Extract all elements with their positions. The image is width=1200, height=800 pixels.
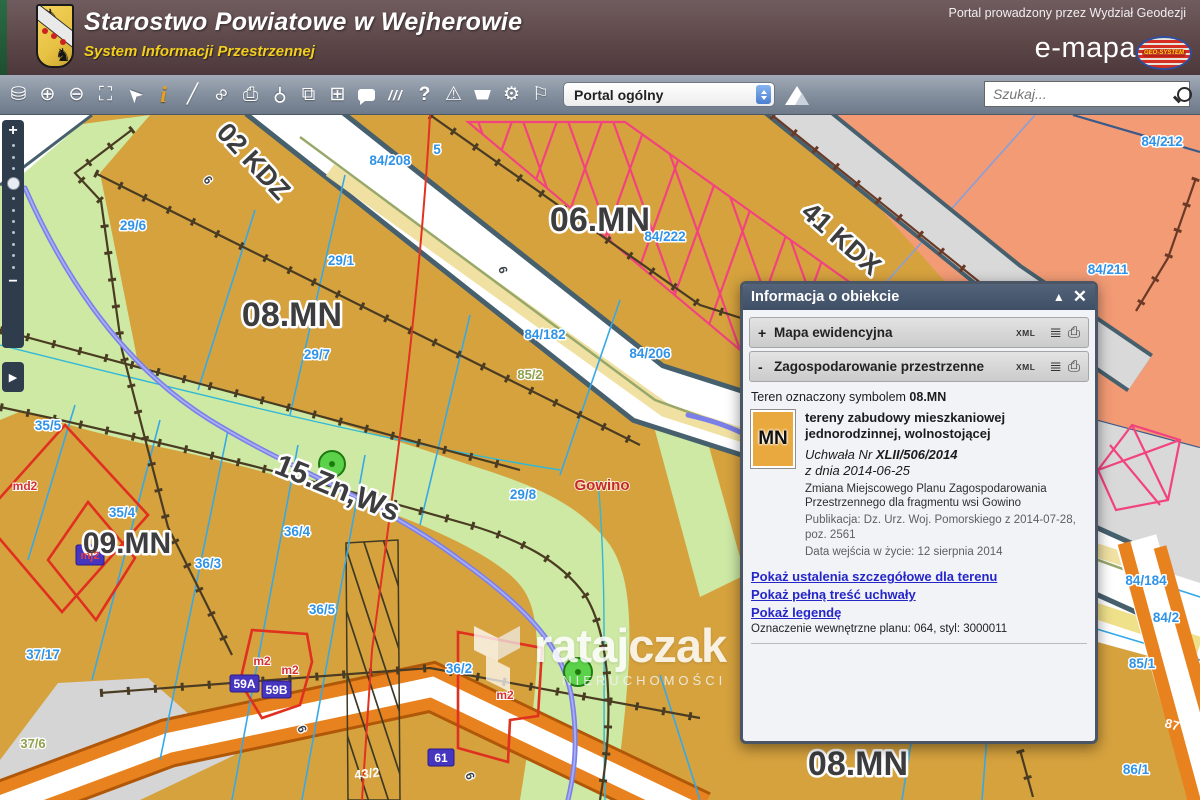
- measure-icon[interactable]: ╱: [178, 80, 207, 110]
- zoom-in-button[interactable]: +: [8, 122, 17, 140]
- copy-view-icon[interactable]: ⧉: [294, 80, 323, 110]
- parcel-label: 29/6: [120, 218, 147, 233]
- parcel-label: 37/17: [26, 647, 60, 662]
- parcel-label: 84/211: [1088, 262, 1129, 277]
- teren-symbol: 08.MN: [909, 390, 946, 404]
- geo-system-logo: GEO-SYSTEM: [1136, 36, 1192, 70]
- resolution-number: Uchwała Nr XLII/506/2014: [805, 447, 1087, 462]
- list-icon[interactable]: ≣: [1049, 325, 1062, 340]
- parcel-label: 29/1: [328, 253, 355, 268]
- help-icon[interactable]: ?: [410, 80, 439, 110]
- teren-line: Teren oznaczony symbolem 08.MN: [751, 390, 1087, 404]
- panel-toggle-button[interactable]: ▶: [2, 362, 24, 392]
- section-zagospodarowanie[interactable]: - Zagospodarowanie przestrzenne XML ≣ ⎙: [749, 351, 1089, 382]
- parcel-label: 84/2: [1153, 610, 1179, 625]
- zoom-in-icon[interactable]: ⊕: [33, 80, 62, 110]
- parcel-label: 36/3: [195, 556, 222, 571]
- parcel-label: 37/6: [20, 736, 45, 751]
- header-edge-strip: [0, 0, 7, 75]
- settings-icon[interactable]: ⚙: [497, 80, 526, 110]
- xml-link[interactable]: XML: [1016, 362, 1035, 372]
- parcel-label: 36/4: [284, 524, 311, 539]
- zone-color-swatch: MN: [751, 410, 795, 468]
- print-icon[interactable]: ⎙: [1068, 359, 1080, 374]
- plan-description: Zmiana Miejscowego Planu Zagospodarowani…: [805, 482, 1087, 512]
- link-icon[interactable]: ∞: [207, 80, 236, 110]
- parcel-label: 84/212: [1141, 134, 1182, 149]
- zoom-out-button[interactable]: −: [8, 273, 17, 291]
- cart-icon[interactable]: [468, 80, 497, 110]
- close-icon[interactable]: ✕: [1073, 288, 1087, 305]
- comment-icon[interactable]: [352, 80, 381, 110]
- gis-portal-window: ♞ ♞ Starostwo Powiatowe w Wejherowie Sys…: [0, 0, 1200, 800]
- terrain-icon[interactable]: [785, 85, 809, 105]
- popup-header[interactable]: Informacja o obiekcie ▲ ✕: [743, 284, 1095, 310]
- parcel-label: 84/208: [369, 153, 411, 168]
- land-class-label: m2: [496, 688, 514, 702]
- object-info-popup: Informacja o obiekcie ▲ ✕ + Mapa ewidenc…: [740, 281, 1098, 744]
- place-label: Gowino: [575, 477, 630, 494]
- parcel-label: 35/5: [35, 418, 62, 433]
- address-label: 61: [434, 751, 448, 765]
- search-icon[interactable]: [1177, 87, 1192, 102]
- parcel-label: 84/206: [629, 346, 671, 361]
- emapa-brand: e-mapa: [1035, 32, 1136, 65]
- zoom-slider-handle[interactable]: [7, 177, 20, 190]
- hatch-icon[interactable]: ///: [381, 80, 410, 110]
- print-icon[interactable]: ⎙: [236, 80, 265, 110]
- xml-link[interactable]: XML: [1016, 328, 1035, 338]
- land-class-label: m2: [281, 663, 299, 677]
- link-show-legend[interactable]: Pokaż legendę: [751, 605, 1087, 620]
- road-parcel-label: 43/2: [353, 765, 380, 783]
- parcel-label: 84/184: [1125, 573, 1167, 588]
- zone-label: 06.MN: [550, 201, 650, 239]
- portal-select-value: Portal ogólny: [574, 87, 663, 103]
- parcel-label: 29/8: [510, 487, 537, 502]
- land-class-label: m2: [253, 654, 271, 668]
- parcel-label: 36/2: [446, 661, 472, 676]
- zoom-out-icon[interactable]: ⊖: [62, 80, 91, 110]
- zone-label: 08.MN: [808, 745, 908, 783]
- land-class-label: md2: [13, 479, 38, 493]
- list-icon[interactable]: ≣: [1049, 359, 1062, 374]
- page-subtitle: System Informacji Przestrzennej: [84, 43, 522, 60]
- pointer-icon[interactable]: ➤: [120, 80, 149, 110]
- parcel-label: 36/5: [309, 602, 336, 617]
- land-use-title: tereny zabudowy mieszkaniowej jednorodzi…: [805, 410, 1087, 443]
- resolution-date: z dnia 2014-06-25: [805, 463, 1087, 478]
- address-label: 59A: [233, 677, 255, 691]
- map-toolbar: ⛁ ⊕ ⊖ ⛶ ➤ i ╱ ∞ ⎙ ⚲ ⧉ ⊞ /// ? ⚠ ⚙ ⚐ Port…: [0, 75, 1200, 115]
- address-label: 59B: [265, 683, 287, 697]
- parcel-label: 85/2: [517, 367, 542, 382]
- select-stepper-icon: [756, 85, 771, 104]
- layers-icon[interactable]: ⛁: [4, 80, 33, 110]
- zoom-slider: + −: [2, 120, 24, 348]
- alerts-icon[interactable]: ⚠: [439, 80, 468, 110]
- locate-icon[interactable]: ⚐: [526, 80, 555, 110]
- parcel-label: 86/1: [1123, 762, 1150, 777]
- link-show-resolution[interactable]: Pokaż pełną treść uchwały: [751, 587, 1087, 602]
- effective-date-note: Data wejścia w życie: 12 sierpnia 2014: [805, 545, 1087, 560]
- select-area-icon[interactable]: ⛶: [91, 80, 120, 110]
- publication-note: Publikacja: Dz. Urz. Woj. Pomorskiego z …: [805, 513, 1087, 543]
- county-coat-of-arms: ♞ ♞: [36, 4, 74, 68]
- print-icon[interactable]: ⎙: [1068, 325, 1080, 340]
- pushpin-icon[interactable]: ⚲: [265, 80, 294, 110]
- section-mapa-ewidencyjna[interactable]: + Mapa ewidencyjna XML ≣ ⎙: [749, 317, 1089, 348]
- griffin-icon: ♞: [55, 46, 71, 64]
- portal-select[interactable]: Portal ogólny: [563, 82, 775, 107]
- zone-label: 08.MN: [242, 296, 342, 334]
- search-box: [984, 81, 1190, 107]
- page-title: Starostwo Powiatowe w Wejherowie: [84, 8, 522, 37]
- popup-body: + Mapa ewidencyjna XML ≣ ⎙ - Zagospodaro…: [743, 310, 1095, 741]
- search-input[interactable]: [991, 85, 1177, 103]
- portal-note: Portal prowadzony przez Wydział Geodezji: [949, 6, 1187, 20]
- internal-plan-note: Oznaczenie wewnętrzne planu: 064, styl: …: [751, 623, 1087, 635]
- header-bar: ♞ ♞ Starostwo Powiatowe w Wejherowie Sys…: [0, 0, 1200, 76]
- info-icon[interactable]: i: [149, 80, 178, 110]
- collapse-icon[interactable]: ▲: [1053, 291, 1065, 303]
- link-show-details[interactable]: Pokaż ustalenia szczegółowe dla terenu: [751, 569, 1087, 584]
- parcel-label: 29/7: [304, 347, 330, 362]
- parcel-label: 85/1: [1129, 656, 1156, 671]
- parcel-label: 84/182: [524, 327, 565, 342]
- layout-icon[interactable]: ⊞: [323, 80, 352, 110]
- parcel-label: 5: [433, 142, 441, 157]
- plan-style-label: mj2: [81, 550, 100, 562]
- popup-title: Informacja o obiekcie: [751, 289, 1045, 305]
- parcel-label: 35/4: [109, 505, 136, 520]
- parcel-label: 84/222: [644, 229, 685, 244]
